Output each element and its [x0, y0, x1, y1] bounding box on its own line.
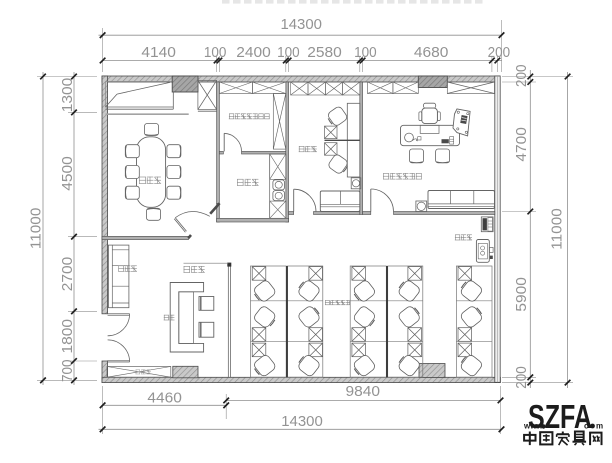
svg-text:14300: 14300 — [281, 413, 323, 430]
svg-text:4140: 4140 — [141, 44, 176, 61]
svg-text:c: c — [584, 422, 589, 431]
svg-text:www: www — [523, 422, 543, 431]
svg-text:14300: 14300 — [280, 16, 322, 33]
svg-text:11000: 11000 — [549, 208, 566, 250]
svg-text:5900: 5900 — [513, 277, 530, 312]
svg-text:700: 700 — [59, 359, 76, 382]
svg-text:200: 200 — [513, 366, 530, 389]
svg-text:1300: 1300 — [59, 78, 76, 113]
svg-text:11000: 11000 — [28, 208, 45, 250]
svg-text:200: 200 — [513, 64, 530, 87]
svg-text:m: m — [596, 422, 603, 431]
svg-text:9840: 9840 — [346, 383, 381, 400]
svg-text:100: 100 — [204, 44, 227, 61]
svg-text:4460: 4460 — [147, 389, 182, 406]
svg-text:2700: 2700 — [59, 257, 76, 292]
svg-text:1800: 1800 — [59, 319, 76, 354]
svg-text:2580: 2580 — [307, 44, 342, 61]
svg-text:4700: 4700 — [513, 127, 530, 162]
svg-text:4500: 4500 — [59, 156, 76, 191]
svg-text:4680: 4680 — [414, 44, 449, 61]
svg-text:2400: 2400 — [236, 44, 271, 61]
